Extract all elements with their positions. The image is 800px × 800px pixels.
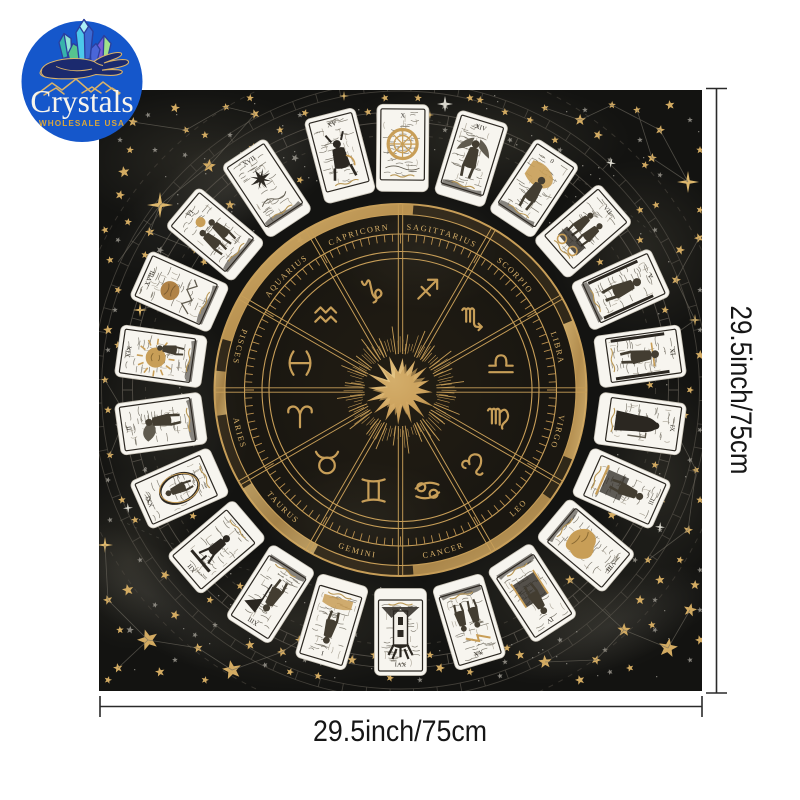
svg-text:29.5inch/75cm: 29.5inch/75cm (313, 715, 487, 748)
svg-text:XVI: XVI (395, 661, 407, 668)
svg-text:29.5inch/75cm: 29.5inch/75cm (724, 306, 757, 475)
svg-text:X: X (400, 112, 405, 119)
svg-text:Crystals: Crystals (30, 84, 133, 119)
svg-text:XI: XI (668, 348, 676, 356)
svg-text:WHOLESALE USA: WHOLESALE USA (39, 119, 125, 128)
svg-text:IX: IX (668, 424, 676, 432)
